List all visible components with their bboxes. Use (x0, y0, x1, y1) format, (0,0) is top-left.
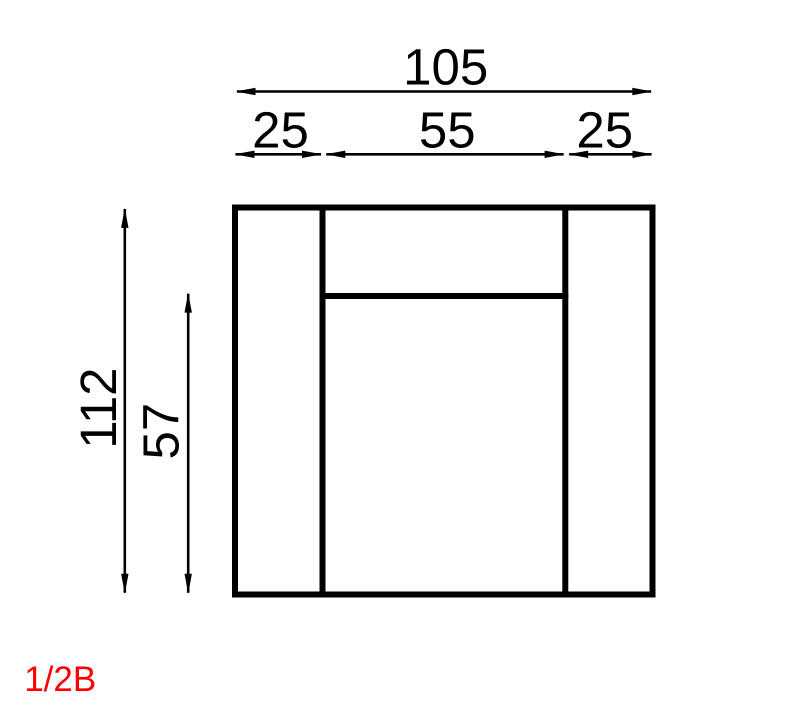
svg-text:112: 112 (70, 367, 127, 448)
svg-text:105: 105 (403, 39, 488, 96)
svg-text:25: 25 (576, 101, 633, 158)
svg-text:1/2B: 1/2B (24, 660, 96, 699)
svg-text:55: 55 (419, 101, 476, 158)
svg-text:57: 57 (133, 403, 190, 460)
svg-text:25: 25 (252, 101, 309, 158)
